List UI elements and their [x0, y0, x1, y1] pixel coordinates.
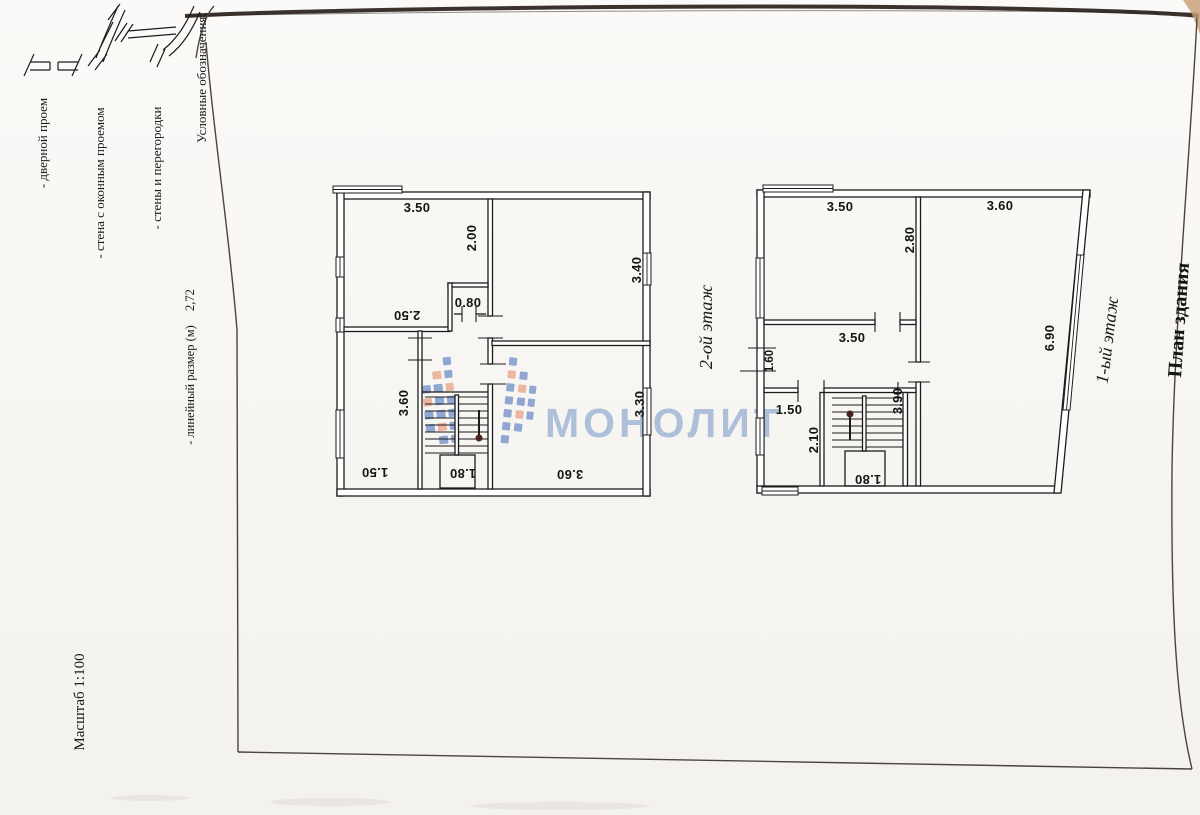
dim-tr-width: 3.60: [987, 198, 1014, 213]
dim-doorway: 0.80: [455, 295, 482, 310]
floor-1-label: 1-ый этаж: [1092, 295, 1123, 384]
watermark: МОНОЛИТ: [419, 357, 783, 446]
frame-left-border: [206, 42, 238, 752]
stair-arrow-dot: [476, 435, 483, 442]
wall-window-icon: [88, 4, 125, 70]
dim-br-height: 3.30: [632, 391, 647, 418]
scale-label: Масштаб 1:100: [72, 653, 88, 750]
stair-arrow-dot: [847, 411, 854, 418]
dim-hall-width: 2.00: [464, 225, 479, 252]
legend-title: Условные обозначения:: [194, 13, 209, 143]
watermark-text: МОНОЛИТ: [545, 400, 783, 446]
legend-door-label: - дверной проем: [35, 98, 50, 188]
floor-2-label: 2-ой этаж: [696, 285, 716, 369]
dim-tl-height: 2.80: [902, 227, 917, 254]
legend-dim-note: - линейный размер (м): [183, 325, 197, 445]
dim-stairs-width: 1.80: [450, 466, 477, 481]
scan-smudges: [110, 795, 650, 810]
page-title: План здания: [1164, 262, 1194, 378]
dim-mid-width: 3.50: [839, 330, 866, 345]
monolit-logo-right-arc: [500, 357, 539, 446]
legend-window-label: - стена с оконным проемом: [92, 107, 107, 258]
dim-tl-depth: 2.50: [394, 308, 421, 323]
dim-tr-height: 3.40: [629, 257, 644, 284]
door-opening-icon: [24, 54, 82, 76]
dim-bl-height: 2.10: [806, 427, 821, 454]
stair-divider: [863, 396, 867, 451]
dim-tl-width: 3.50: [827, 199, 854, 214]
scanned-floor-plan-page: { "colors": { "ink": "#1c1c1c", "frame":…: [0, 0, 1200, 815]
drawing-canvas: МОНОЛИТ Условные обозначен: [0, 0, 1200, 815]
stair-divider: [455, 395, 459, 455]
dim-right-height: 6.90: [1042, 325, 1057, 352]
dimension-labels: 3.50 3.60 2.80 3.50 1.60 6.90 1.50 2.10 …: [764, 198, 1057, 487]
floor-plan-1: 3.50 3.60 2.80 3.50 1.60 6.90 1.50 2.10 …: [740, 185, 1090, 495]
dim-door: 1.50: [776, 402, 803, 417]
floor-plan-2: 3.50 2.00 0.80 2.50 3.40 3.60 1.50 1.80 …: [333, 186, 651, 496]
legend-wall-label: - стены и перегородки: [149, 106, 164, 229]
dim-stairwell: 3.90: [890, 388, 905, 415]
frame-bottom-border: [238, 752, 1192, 769]
dim-left-opening: 1.60: [764, 350, 776, 372]
dim-bl-height: 3.60: [396, 390, 411, 417]
dim-stairs-width: 1.80: [855, 472, 882, 487]
legend-dim-example: 2,72: [183, 289, 197, 311]
dim-bl-width: 1.50: [362, 465, 389, 480]
dim-br-width: 3.60: [557, 467, 584, 482]
legend: Условные обозначения: - стены и перегоро…: [24, 4, 209, 445]
frame-right-border: [1172, 18, 1197, 769]
dim-top-width: 3.50: [404, 200, 431, 215]
